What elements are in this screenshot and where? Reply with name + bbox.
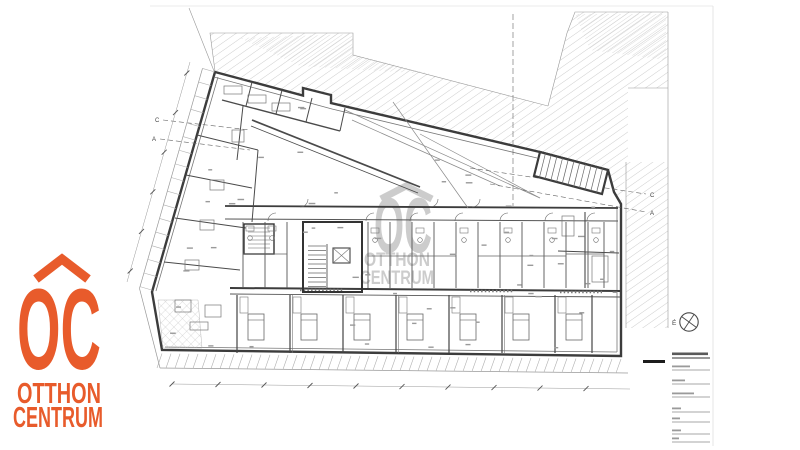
plan-drawing: OC OTTHON CENTRUM xyxy=(0,0,800,450)
company-logo: OC OTTHON CENTRUM xyxy=(13,259,103,434)
logo-line2: CENTRUM xyxy=(13,402,103,434)
grid-label-a-left: A xyxy=(152,137,156,143)
title-block-heading-text xyxy=(672,353,708,356)
grid-label-a-right: A xyxy=(650,211,654,217)
title-block xyxy=(643,353,710,443)
grid-label-c-left: C xyxy=(155,118,160,124)
logo-monogram: OC xyxy=(17,266,101,394)
site-hatch-right-strip xyxy=(626,162,668,328)
floor-plan-sheet: OC OTTHON CENTRUM xyxy=(0,0,800,450)
scale-bar xyxy=(643,360,665,363)
north-label: É xyxy=(672,318,677,327)
north-compass: É xyxy=(672,313,698,331)
grid-label-c-right: C xyxy=(650,193,655,199)
